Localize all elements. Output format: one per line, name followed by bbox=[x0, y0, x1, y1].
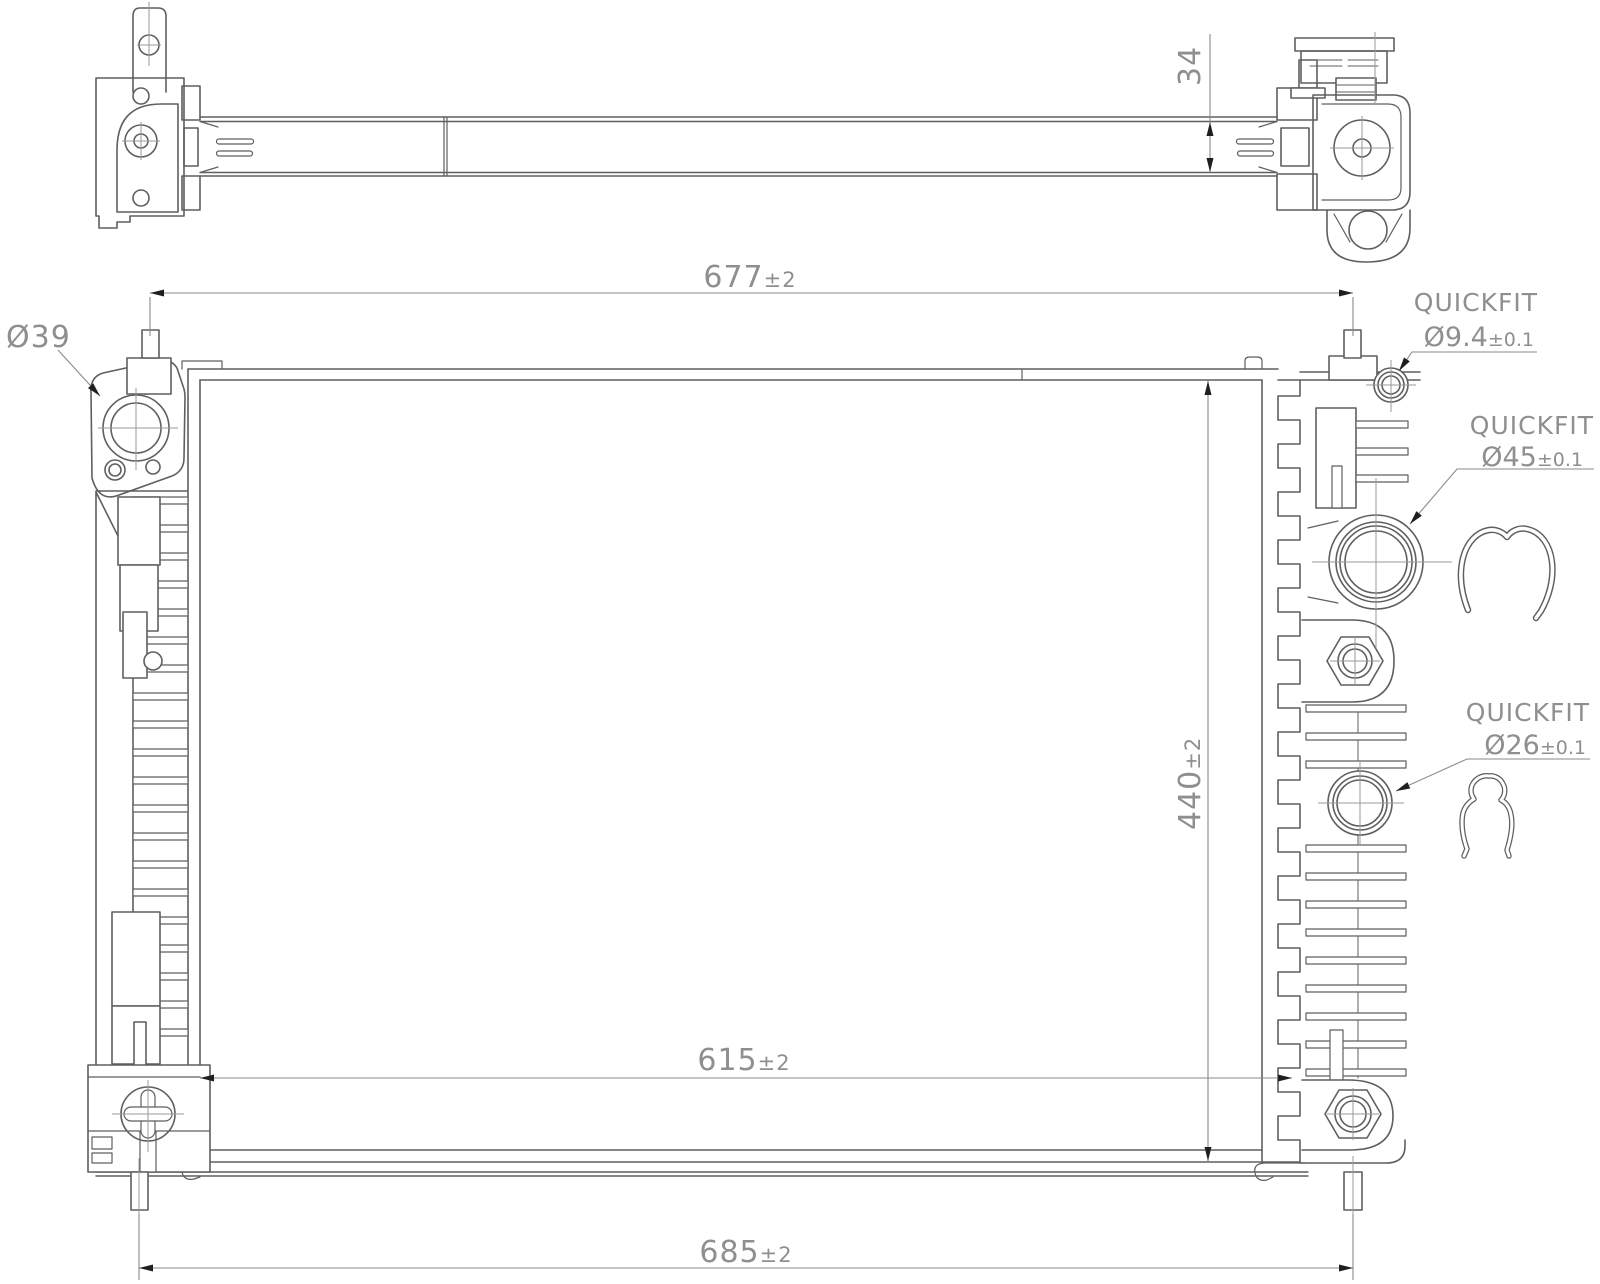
label-inlet-d39: Ø39 bbox=[6, 320, 71, 355]
dim-34-label: 34 bbox=[1173, 46, 1208, 86]
drawing-sheet: 34 677±2 440±2 615±2 685±2 Ø39 QUICKFIT … bbox=[0, 0, 1600, 1284]
radiator-technical-drawing: 34 677±2 440±2 615±2 685±2 Ø39 QUICKFIT … bbox=[0, 0, 1600, 1284]
tank-fins-lower bbox=[1306, 845, 1406, 1076]
hex-nut-lower bbox=[1302, 1080, 1393, 1150]
label-quickfit-top-title: QUICKFIT bbox=[1414, 288, 1538, 317]
fin-cross-pin bbox=[1330, 1030, 1343, 1084]
bottom-left-bracket bbox=[88, 1065, 210, 1172]
tank-block-upper bbox=[118, 497, 160, 565]
label-quickfit-mid-title: QUICKFIT bbox=[1470, 411, 1594, 440]
mount-pin-top-left-base bbox=[127, 358, 171, 394]
label-quickfit-low-title: QUICKFIT bbox=[1466, 698, 1590, 727]
cap-collar bbox=[1336, 78, 1376, 100]
mount-pin-top-right-base bbox=[1329, 356, 1377, 380]
dim-34-label-group: 34 bbox=[1173, 46, 1208, 86]
filler-pin-collar bbox=[1291, 88, 1325, 98]
tank-clip-hole bbox=[144, 652, 162, 670]
reservoir-neck-pin bbox=[1332, 466, 1342, 508]
tank-clip-bracket bbox=[123, 612, 147, 678]
connector-block-upper bbox=[112, 912, 160, 1006]
